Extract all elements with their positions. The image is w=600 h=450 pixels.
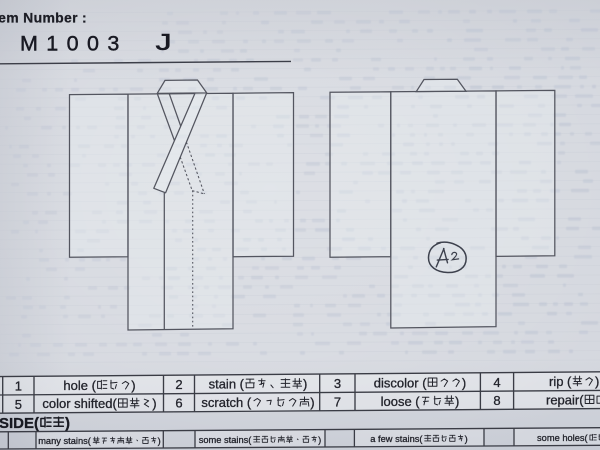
- svg-text:): ): [152, 396, 156, 411]
- svg-text:rip (: rip (: [549, 374, 572, 389]
- svg-text:loose (: loose (: [381, 394, 421, 409]
- svg-text:a few stains(: a few stains(: [370, 434, 423, 444]
- svg-text:): ): [310, 395, 314, 410]
- svg-text:3: 3: [334, 376, 341, 391]
- svg-text:): ): [462, 375, 466, 390]
- svg-text:): ): [158, 436, 161, 446]
- svg-text:color shifted(: color shifted(: [42, 396, 117, 411]
- svg-text:M1003: M1003: [20, 32, 128, 56]
- svg-text:): ): [455, 394, 459, 409]
- svg-text:): ): [303, 377, 307, 392]
- svg-text:some stains(: some stains(: [199, 435, 253, 445]
- svg-text:stain (: stain (: [209, 377, 245, 392]
- svg-text:8: 8: [493, 393, 500, 408]
- svg-text:): ): [131, 378, 135, 393]
- svg-text:): ): [595, 374, 599, 389]
- svg-text:4: 4: [493, 375, 500, 390]
- svg-text:hole (: hole (: [63, 378, 96, 393]
- svg-text:1: 1: [15, 379, 22, 394]
- svg-text:): ): [318, 435, 321, 445]
- svg-text:discolor (: discolor (: [374, 375, 427, 390]
- svg-text:): ): [465, 434, 468, 444]
- svg-text:INSIDE(: INSIDE(: [0, 415, 39, 432]
- svg-text:7: 7: [334, 394, 341, 409]
- svg-text:many stains(: many stains(: [38, 436, 92, 446]
- svg-text:): ): [65, 415, 70, 432]
- svg-text:repair(: repair(: [546, 393, 584, 408]
- svg-text:5: 5: [15, 397, 22, 412]
- svg-text:some holes(: some holes(: [537, 433, 589, 443]
- svg-text:J: J: [156, 29, 172, 54]
- svg-text:Item Number :: Item Number :: [0, 10, 87, 26]
- svg-text:scratch (: scratch (: [201, 395, 252, 410]
- svg-text:2: 2: [175, 377, 182, 392]
- svg-text:6: 6: [175, 396, 182, 411]
